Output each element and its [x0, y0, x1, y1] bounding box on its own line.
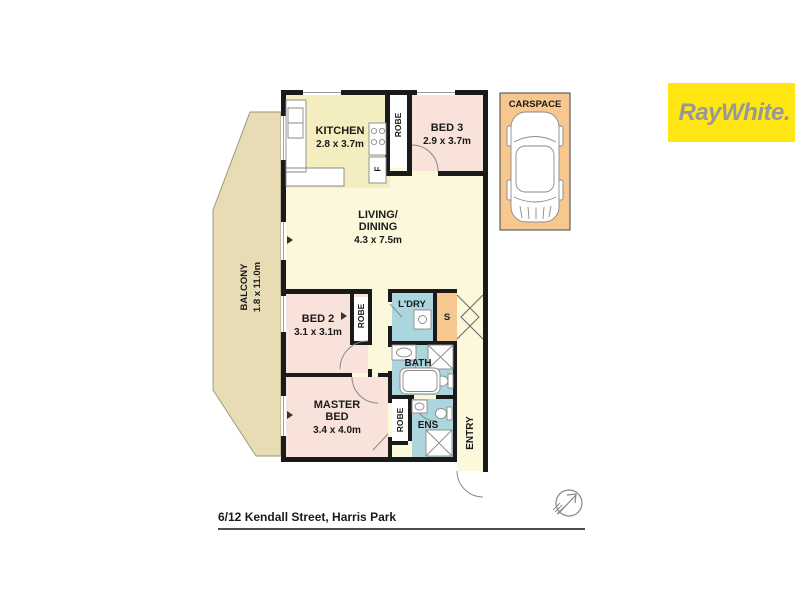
floorplan-page: KITCHEN 2.8 x 3.7m BED 3 2.9 x 3.7m ROBE…	[0, 0, 800, 600]
bathtub	[400, 368, 440, 394]
address-label: 6/12 Kendall Street, Harris Park	[218, 510, 396, 524]
kitchen-label: KITCHEN	[316, 125, 365, 137]
living-label-2: DINING	[359, 221, 398, 233]
ensuite-label: ENS	[418, 420, 439, 431]
ens-toilet	[436, 409, 447, 419]
north-arrow-icon	[553, 490, 582, 516]
fridge-label: F	[374, 166, 383, 171]
entry-label: ENTRY	[465, 416, 476, 450]
stove	[369, 123, 386, 155]
balcony-dims: 1.8 x 11.0m	[252, 262, 263, 312]
master-robe-label: ROBE	[395, 407, 405, 432]
ens-vanity	[412, 400, 427, 413]
ens-toilet-tank	[447, 407, 452, 420]
master-label-1: MASTER	[314, 399, 361, 411]
laundry-label: L'DRY	[398, 299, 426, 310]
robe-top-label: ROBE	[393, 112, 403, 137]
carspace: CARSPACE	[500, 93, 570, 230]
bed2-label: BED 2	[302, 313, 334, 325]
bed3-label: BED 3	[431, 122, 463, 134]
bed2-robe-label: ROBE	[356, 303, 366, 328]
living-label-1: LIVING/	[358, 209, 398, 221]
bed3-dims: 2.9 x 3.7m	[423, 136, 471, 147]
carspace-label: CARSPACE	[509, 99, 562, 110]
raywhite-logo: RayWhite.	[668, 83, 795, 142]
bed2-dims: 3.1 x 3.1m	[294, 327, 342, 338]
bath-toilet-tank	[448, 374, 453, 388]
storage-label: S	[444, 312, 450, 323]
master-label-2: BED	[325, 411, 348, 423]
raywhite-logo-text: RayWhite.	[678, 99, 790, 127]
living-dims: 4.3 x 7.5m	[354, 235, 402, 246]
master-dims: 3.4 x 4.0m	[313, 425, 361, 436]
kitchen-dims: 2.8 x 3.7m	[316, 139, 364, 150]
car-icon	[507, 112, 563, 222]
bath-label: BATH	[404, 358, 431, 369]
address-divider	[218, 528, 585, 530]
balcony-label: BALCONY	[239, 263, 250, 311]
washing-machine	[414, 310, 431, 329]
